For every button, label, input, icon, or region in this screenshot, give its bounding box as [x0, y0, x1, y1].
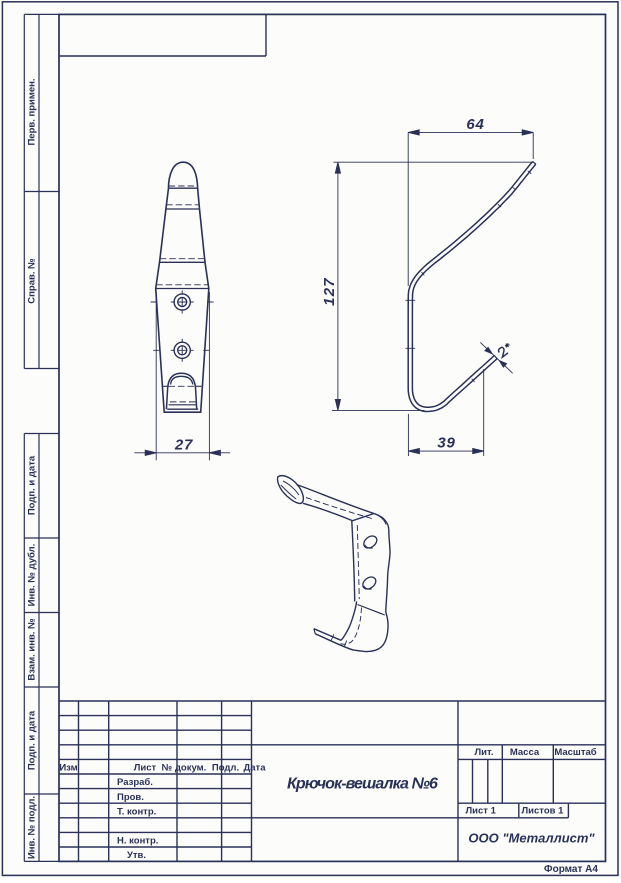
svg-text:Изм: Изм — [59, 763, 77, 774]
svg-text:Разраб.: Разраб. — [117, 777, 153, 788]
svg-text:Взам. инв. №: Взам. инв. № — [27, 618, 38, 681]
svg-text:64: 64 — [466, 116, 484, 133]
svg-text:Лист 1: Лист 1 — [466, 806, 497, 817]
svg-text:Листов 1: Листов 1 — [522, 806, 565, 817]
svg-text:Пров.: Пров. — [117, 792, 144, 803]
svg-text:Формат А4: Формат А4 — [544, 864, 598, 875]
svg-text:Подл.: Подл. — [212, 763, 239, 774]
svg-text:39: 39 — [437, 435, 455, 452]
svg-text:Инв. № подл.: Инв. № подл. — [27, 796, 38, 859]
svg-text:ООО "Металлист": ООО "Металлист" — [468, 831, 595, 846]
svg-text:Масса: Масса — [510, 747, 540, 758]
svg-text:№ докум.: № докум. — [162, 763, 207, 774]
svg-text:Лит.: Лит. — [475, 747, 494, 758]
svg-text:Перв. примен.: Перв. примен. — [27, 78, 38, 145]
svg-text:Инв. № дубл.: Инв. № дубл. — [27, 544, 38, 607]
svg-text:Т. контр.: Т. контр. — [117, 806, 156, 817]
svg-text:Н. контр.: Н. контр. — [117, 836, 158, 847]
svg-text:Подп. и дата: Подп. и дата — [27, 710, 38, 770]
svg-text:Подп. и дата: Подп. и дата — [27, 455, 38, 515]
svg-text:Крючок-вешалка №6: Крючок-вешалка №6 — [287, 776, 438, 793]
svg-text:27: 27 — [174, 437, 193, 454]
svg-text:Лист: Лист — [134, 763, 157, 774]
svg-text:Утв.: Утв. — [127, 850, 146, 861]
svg-text:Справ. №: Справ. № — [27, 258, 38, 304]
svg-text:Дата: Дата — [244, 763, 267, 774]
svg-text:127: 127 — [321, 277, 338, 306]
svg-text:Масштаб: Масштаб — [554, 747, 596, 758]
